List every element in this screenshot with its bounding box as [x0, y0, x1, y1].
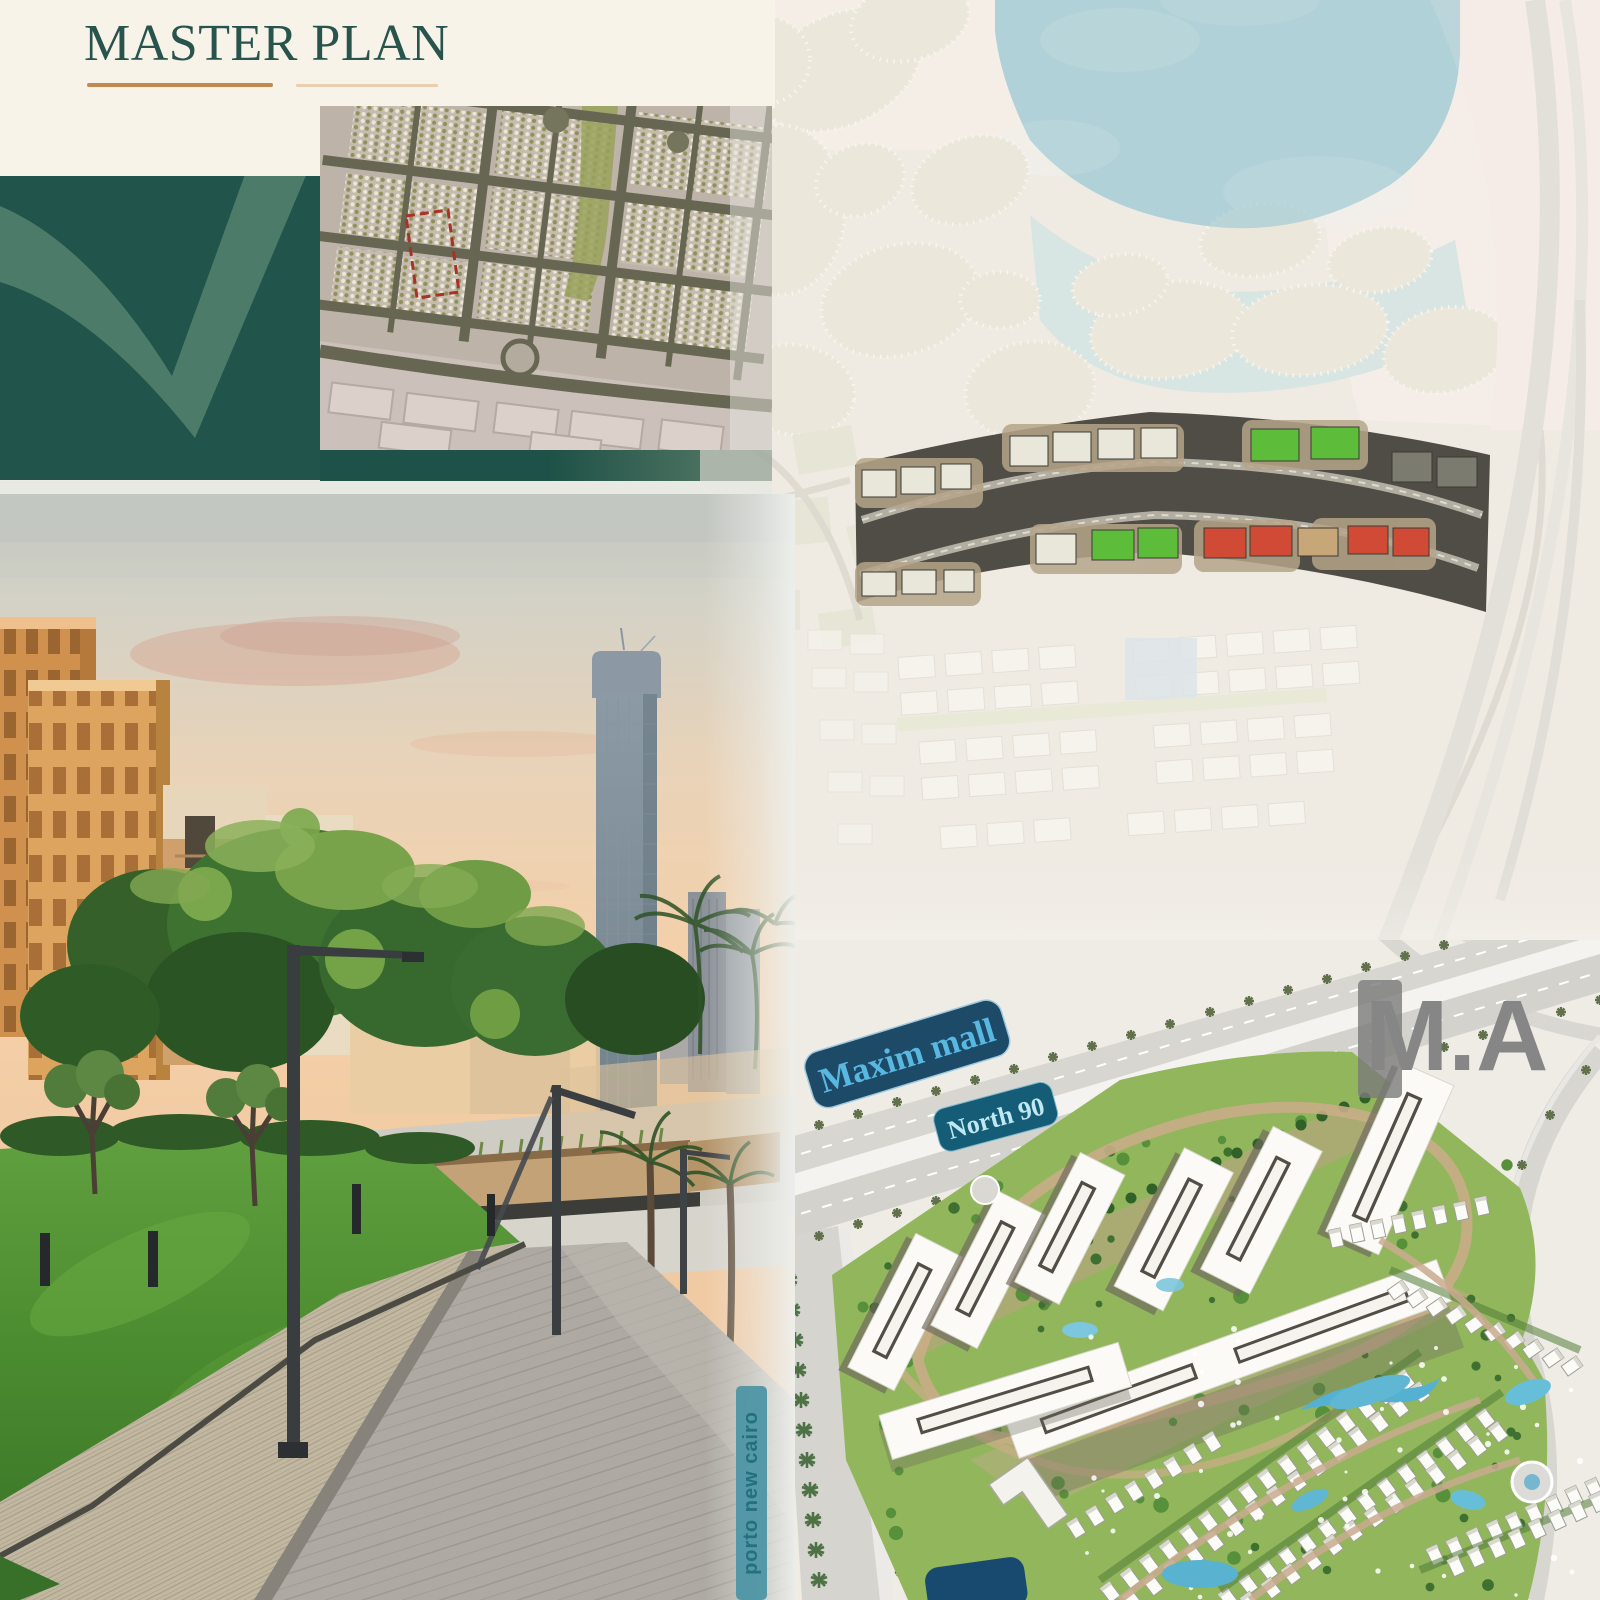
svg-text:M.A: M.A — [1365, 980, 1548, 1092]
